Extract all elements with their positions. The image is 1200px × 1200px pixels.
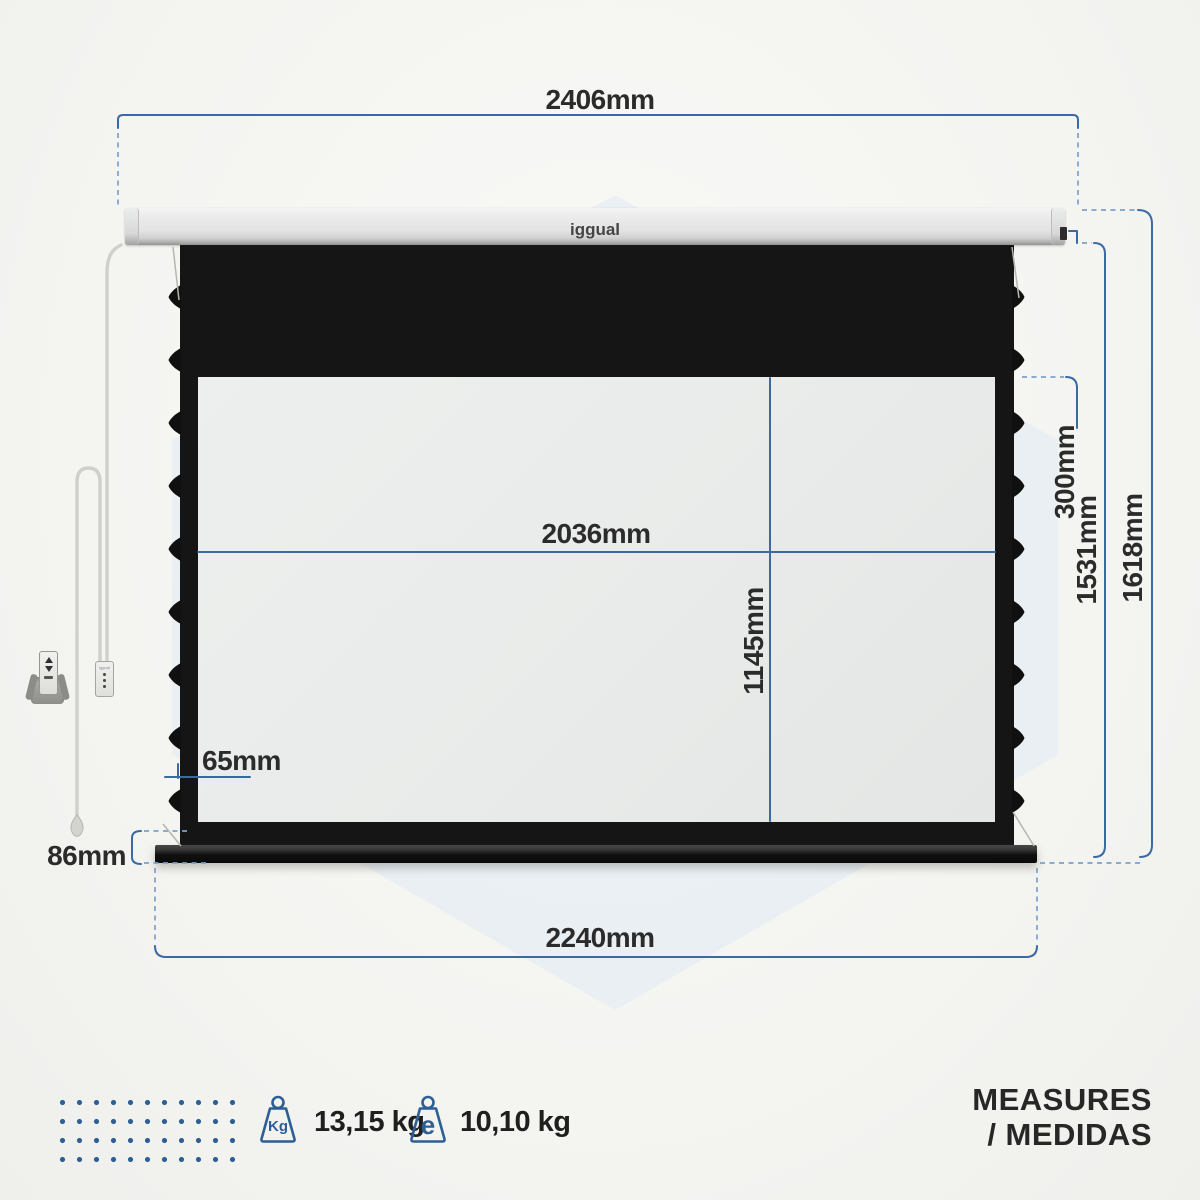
label-housing-width: 2406mm — [450, 84, 750, 116]
dim-line-bar-height — [132, 831, 141, 864]
screen-housing: iggual — [125, 208, 1065, 245]
weight-net-icon: e — [404, 1094, 454, 1146]
label-drop-height: 1531mm — [1071, 485, 1099, 615]
label-bar-width: 2240mm — [450, 922, 750, 954]
holder-wing-left — [25, 674, 38, 701]
label-side-border: 65mm — [202, 745, 281, 777]
dim-line-housing-width — [118, 115, 1078, 128]
section-title: MEASURES / MEDIDAS — [820, 1082, 1152, 1152]
section-title-line1: MEASURES — [820, 1082, 1152, 1117]
remote-control — [39, 651, 58, 695]
section-title-line2: / MEDIDAS — [820, 1117, 1152, 1152]
housing-bracket — [1060, 227, 1067, 240]
switch-button-3 — [103, 685, 106, 688]
dot-grid-decoration — [52, 1091, 235, 1163]
dim-line-top-drop — [1066, 231, 1077, 428]
weight-net: 10,10 kg — [460, 1106, 570, 1139]
cord-plug-tip — [71, 815, 83, 836]
cord-loop — [77, 468, 100, 824]
tension-tabs-right — [1012, 245, 1026, 845]
tension-tabs-left — [167, 245, 181, 845]
remote-up-button-icon — [45, 657, 53, 663]
power-cord — [107, 245, 121, 661]
switch-button-1 — [103, 673, 106, 676]
screen-viewing-area — [198, 377, 995, 822]
label-total-height: 1618mm — [1117, 483, 1145, 613]
label-viewing-width: 2036mm — [446, 518, 746, 550]
weight-kg-icon: Kg — [254, 1094, 304, 1146]
label-bar-height: 86mm — [28, 840, 126, 872]
brand-logo: iggual — [125, 220, 1065, 240]
product-diagram: iggual 2406mm — [0, 0, 1200, 1200]
remote-down-button-icon — [45, 666, 53, 672]
weighted-bottom-bar — [155, 845, 1037, 863]
label-viewing-height: 1145mm — [738, 576, 766, 706]
weight-kg-icon-text: Kg — [268, 1118, 288, 1135]
holder-wing-right — [57, 674, 70, 701]
remote-stop-button-icon — [44, 676, 53, 679]
switch-button-2 — [103, 679, 106, 682]
wall-switch: iggual — [95, 661, 114, 697]
wall-switch-label: iggual — [96, 665, 113, 670]
weight-net-icon-text: e — [421, 1110, 435, 1140]
